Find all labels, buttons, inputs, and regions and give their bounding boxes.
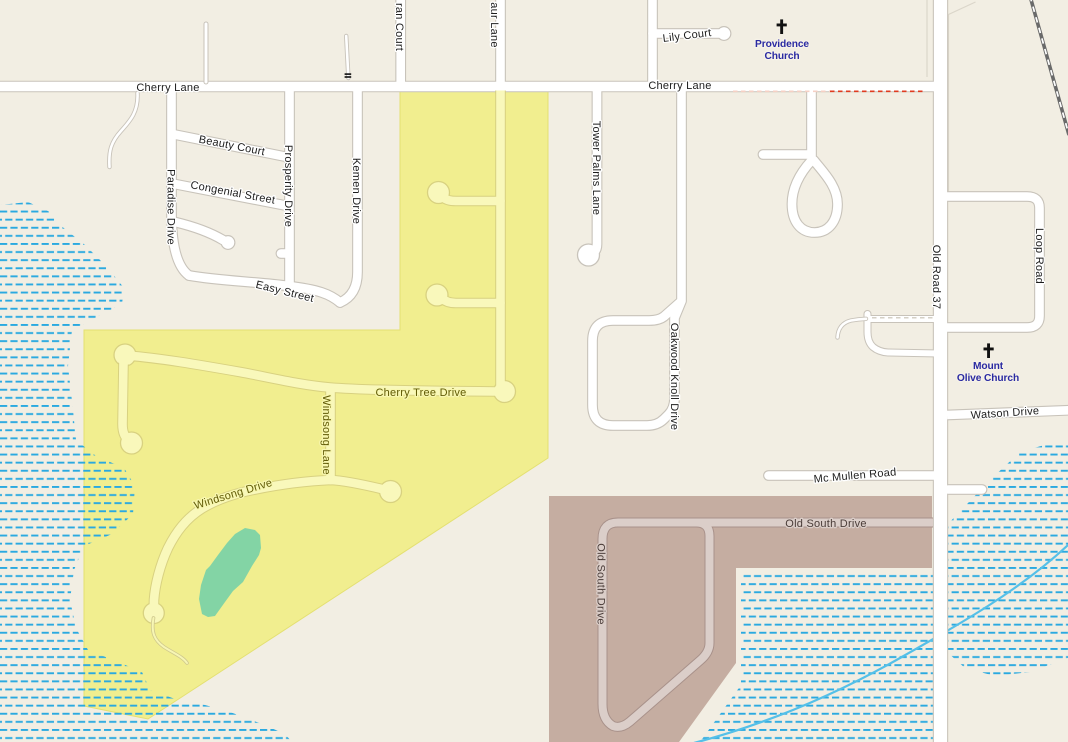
svg-text:ran Court: ran Court [393,3,405,51]
svg-text:Loop Road: Loop Road [1033,228,1045,284]
svg-text:Olive Church: Olive Church [957,373,1019,384]
svg-text:Old South Drive: Old South Drive [785,518,866,530]
svg-text:Cherry Lane: Cherry Lane [136,82,199,94]
svg-text:Church: Church [764,51,799,62]
svg-text:Cherry Lane: Cherry Lane [648,80,711,92]
svg-text:Windsong Lane: Windsong Lane [320,395,332,475]
svg-text:Providence: Providence [755,39,809,50]
svg-text:Prosperity Drive: Prosperity Drive [282,145,294,227]
svg-text:Kemen Drive: Kemen Drive [350,158,362,224]
svg-text:Paradise Drive: Paradise Drive [165,169,177,245]
svg-text:aur Lane: aur Lane [488,2,500,47]
svg-text:Cherry Tree Drive: Cherry Tree Drive [375,387,466,399]
svg-text:Old Road 37: Old Road 37 [930,245,942,310]
svg-text:Mount: Mount [973,361,1004,372]
svg-text:Tower Palms Lane: Tower Palms Lane [590,121,602,216]
svg-text:Old South Drive: Old South Drive [595,543,607,624]
svg-text:Oakwood Knoll Drive: Oakwood Knoll Drive [668,323,680,430]
